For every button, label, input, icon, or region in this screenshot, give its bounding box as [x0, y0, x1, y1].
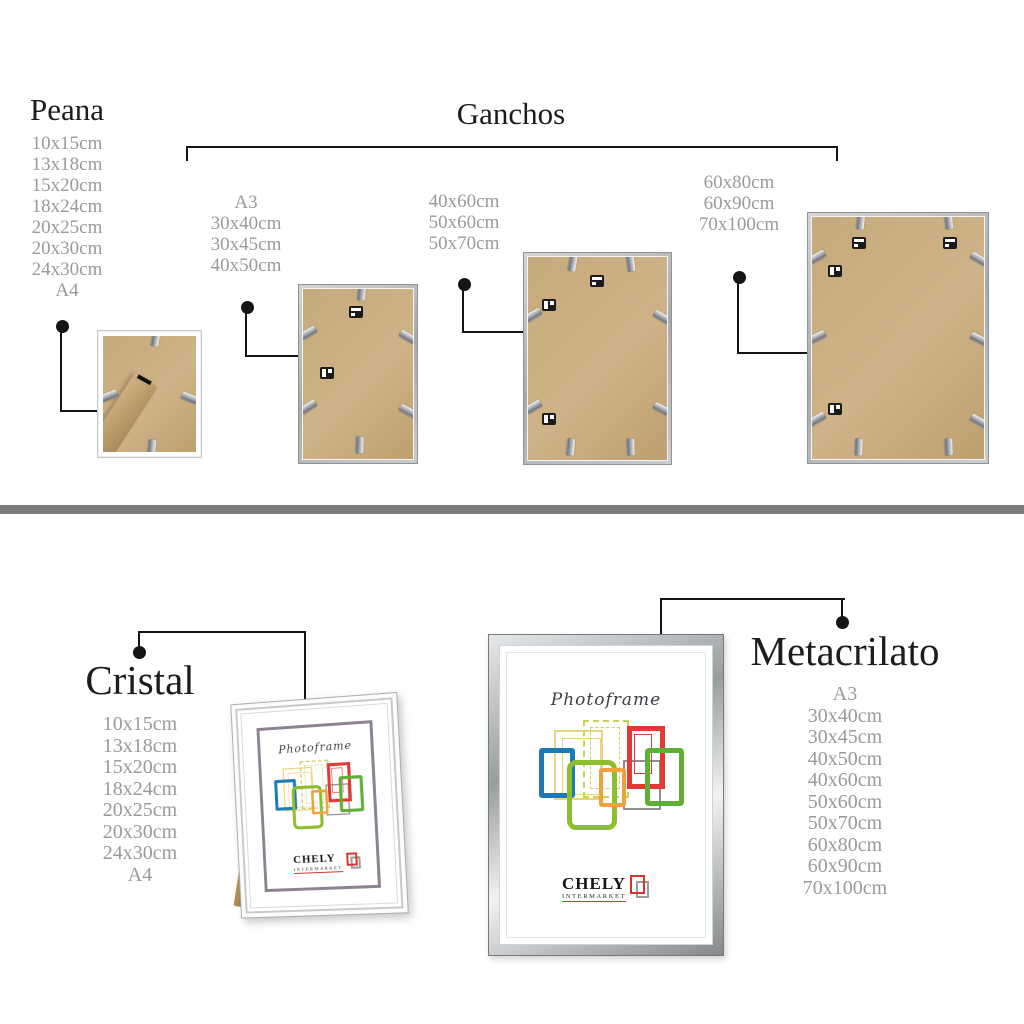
pointer-dot [733, 271, 746, 284]
size-item: A3 [186, 192, 306, 213]
ganchos-size-group-3: 60x80cm60x90cm70x100cm [676, 172, 802, 235]
deco-rect [311, 789, 329, 814]
deco-rectangles-art [535, 718, 681, 822]
metal-clip-icon [652, 309, 667, 324]
metal-clip-icon [566, 438, 575, 456]
cristal-size-list: 10x15cm13x18cm15x20cm18x24cm20x25cm20x30… [50, 714, 230, 886]
size-item: 18x24cm [50, 779, 230, 801]
brand-subtitle: INTERMARKET [294, 866, 343, 875]
size-item: 20x25cm [50, 800, 230, 822]
metal-clip-icon [528, 307, 543, 322]
size-item: A3 [745, 684, 945, 706]
size-item: 18x24cm [7, 196, 127, 217]
brand-frame-icon [630, 875, 650, 899]
metacrilato-title: Metacrilato [735, 631, 955, 672]
size-item: 20x30cm [7, 238, 127, 259]
pointer-dot [56, 320, 69, 333]
size-item: 50x70cm [404, 233, 524, 254]
metal-clip-icon [398, 329, 413, 344]
deco-rect [338, 775, 364, 812]
size-item: 10x15cm [7, 133, 127, 154]
hanger-icon [852, 237, 866, 249]
size-item: 50x60cm [745, 792, 945, 814]
peana-title: Peana [7, 94, 127, 125]
metal-clip-icon [969, 251, 984, 266]
kraft-back [303, 289, 413, 459]
size-item: 30x45cm [745, 727, 945, 749]
metal-clip-icon [944, 438, 953, 455]
hanger-icon [320, 367, 334, 379]
brand-subtitle: INTERMARKET [562, 894, 626, 903]
size-item: 70x100cm [676, 214, 802, 235]
size-item: 30x40cm [745, 706, 945, 728]
cristal-frame-photo: Photoframe CHELY INTERMARKET [230, 692, 408, 919]
frame-mat: Photoframe CHELY INTERMARKET [256, 720, 381, 892]
size-item: 60x80cm [745, 835, 945, 857]
brand-frame-icon [346, 852, 360, 868]
size-item: 40x60cm [404, 191, 524, 212]
frame-back-medium [523, 252, 672, 465]
kraft-back [103, 336, 196, 452]
metal-clip-icon [969, 332, 984, 347]
frame-back-small [298, 284, 418, 464]
frame-interior: Photoframe CHELY INTERMARKET [500, 646, 712, 944]
size-item: A4 [7, 280, 127, 301]
metal-clip-icon [357, 289, 367, 301]
size-item: 50x70cm [745, 813, 945, 835]
brand-logo: CHELY INTERMARKET [562, 875, 650, 903]
deco-rectangles-art [271, 756, 363, 825]
frame-back-peana [97, 330, 202, 458]
hanger-icon [542, 413, 556, 425]
metal-clip-icon [625, 257, 635, 272]
hanger-icon [542, 299, 556, 311]
size-item: 24x30cm [50, 843, 230, 865]
peana-size-list: 10x15cm13x18cm15x20cm18x24cm20x25cm20x30… [7, 133, 127, 301]
metal-clip-icon [854, 438, 863, 455]
frame-size-infographic: Peana 10x15cm13x18cm15x20cm18x24cm20x25c… [0, 0, 1024, 1024]
size-item: 60x90cm [745, 856, 945, 878]
brand-name: CHELY [562, 875, 626, 892]
kraft-back [528, 257, 667, 460]
metal-clip-icon [856, 217, 866, 230]
hanger-icon [943, 237, 957, 249]
kraft-back [812, 217, 984, 459]
hanger-icon [828, 403, 842, 415]
size-item: 15x20cm [50, 757, 230, 779]
hanger-icon [590, 275, 604, 287]
hanger-icon [349, 306, 363, 318]
ganchos-size-group-2: 40x60cm50x60cm50x70cm [404, 191, 524, 254]
metal-clip-icon [812, 330, 827, 345]
size-item: 60x90cm [676, 193, 802, 214]
size-item: 50x60cm [404, 212, 524, 233]
ganchos-title: Ganchos [411, 98, 611, 129]
photoframe-script-label: Photoframe [260, 737, 371, 757]
frame-back-large [807, 212, 989, 464]
cristal-title: Cristal [50, 660, 230, 701]
size-item: 30x45cm [186, 234, 306, 255]
brand-logo: CHELY INTERMARKET [293, 852, 360, 874]
size-item: 13x18cm [7, 154, 127, 175]
size-item: 24x30cm [7, 259, 127, 280]
metal-clip-icon [355, 436, 364, 453]
metal-clip-icon [626, 438, 635, 455]
metal-clip-icon [303, 325, 318, 340]
metal-clip-icon [812, 411, 827, 426]
section-divider [0, 505, 1024, 514]
size-item: 40x50cm [186, 255, 306, 276]
deco-rect [645, 748, 684, 806]
size-item: 13x18cm [50, 736, 230, 758]
size-item: 15x20cm [7, 175, 127, 196]
photoframe-script-label: Photoframe [500, 690, 712, 710]
size-item: 40x60cm [745, 770, 945, 792]
metal-clip-icon [652, 401, 667, 416]
metal-clip-icon [567, 257, 578, 272]
pointer-dot [241, 301, 254, 314]
brand-name: CHELY [293, 853, 343, 866]
metal-clip-icon [969, 413, 984, 428]
size-item: 20x30cm [50, 822, 230, 844]
size-item: 10x15cm [50, 714, 230, 736]
metal-clip-icon [303, 399, 318, 415]
metal-clip-icon [150, 336, 161, 347]
size-item: A4 [50, 865, 230, 887]
deco-rect [599, 768, 626, 807]
metal-clip-icon [398, 403, 413, 418]
ganchos-size-group-1: A330x40cm30x45cm40x50cm [186, 192, 306, 276]
size-item: 60x80cm [676, 172, 802, 193]
metacrilato-size-list: A330x40cm30x45cm40x50cm40x60cm50x60cm50x… [745, 684, 945, 899]
metal-clip-icon [944, 217, 954, 230]
metal-clip-icon [528, 399, 543, 414]
metacrilato-frame-photo: Photoframe CHELY INTERMARKET [488, 634, 724, 956]
size-item: 70x100cm [745, 878, 945, 900]
hanger-icon [828, 265, 842, 277]
pointer-dot [458, 278, 471, 291]
size-item: 20x25cm [7, 217, 127, 238]
size-item: 40x50cm [745, 749, 945, 771]
metal-clip-icon [147, 439, 156, 452]
metal-clip-icon [180, 391, 196, 405]
size-item: 30x40cm [186, 213, 306, 234]
ganchos-bracket [186, 146, 838, 161]
metal-clip-icon [812, 249, 827, 264]
